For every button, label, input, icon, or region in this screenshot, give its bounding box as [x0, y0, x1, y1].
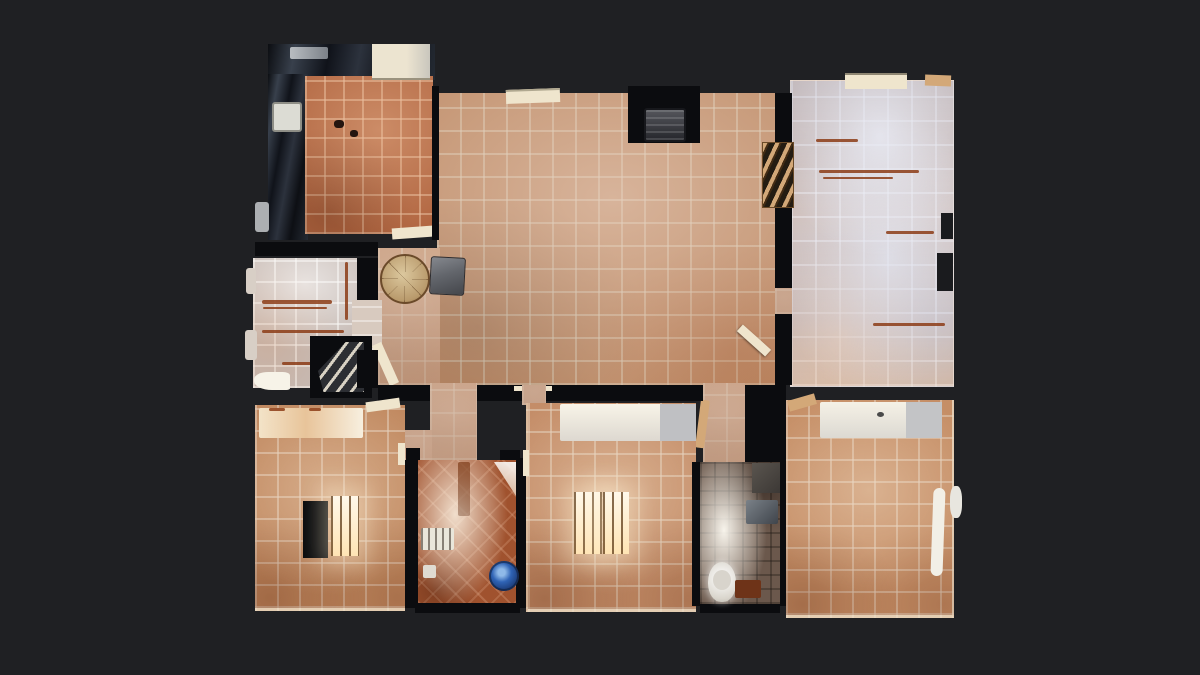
kitchen-counter-left [268, 74, 308, 240]
room-living-hall[interactable] [378, 86, 790, 402]
wall-notch [941, 213, 953, 239]
furniture-streak [816, 139, 858, 142]
scan-hole [303, 501, 328, 558]
toilet-seat [713, 570, 731, 590]
furniture-streak [873, 323, 945, 326]
band-mark [269, 408, 285, 411]
shelf-streak [262, 330, 344, 333]
barred-window-glow-right-pane [603, 492, 629, 554]
furniture-streak [823, 177, 893, 179]
shelf-streak [263, 307, 327, 309]
bath-mat [735, 580, 761, 598]
hall-wall-vent [506, 88, 560, 104]
wall-laundry-left [405, 460, 418, 608]
door-jamb [523, 450, 529, 476]
corridor-left[interactable] [430, 383, 477, 460]
shelf-streak-vertical [345, 262, 348, 320]
bed-bright-band [259, 408, 363, 438]
bathroom-shelf [746, 500, 778, 524]
room-bedroom-bottom-right[interactable] [786, 400, 954, 618]
detergent-box [423, 565, 436, 578]
bed-white-band [820, 402, 942, 438]
wall-dining-hall-upper [357, 258, 378, 300]
wardrobe-gray-section [660, 404, 696, 441]
bed-gray-section [906, 402, 942, 438]
hall-floor [437, 93, 775, 385]
shelf-streak [262, 300, 332, 304]
door-jamb [546, 386, 552, 391]
band-mark [309, 408, 321, 411]
corridor-right[interactable] [703, 383, 745, 465]
corner-door-piece [787, 393, 817, 411]
wall-kitchen-dining [255, 242, 378, 256]
fireplace [644, 108, 686, 142]
wall-laundry-right [516, 458, 526, 608]
furniture-streak [819, 170, 919, 173]
bed-dark-dot [877, 412, 884, 417]
doorway-mid-bedroom [522, 385, 546, 405]
blue-bucket [489, 561, 519, 591]
toilet [708, 562, 736, 602]
wall-kitchen-hall [432, 86, 439, 240]
wall-segment [745, 385, 786, 463]
corner-door-piece [365, 398, 400, 413]
kitchen-sink [272, 102, 302, 132]
dining-left-edge-piece [246, 268, 256, 294]
exterior-door-blob [950, 486, 962, 518]
round-table [380, 254, 430, 304]
drying-rack-shelf [421, 528, 454, 550]
door-jamb [398, 443, 405, 465]
bathroom-counter [752, 463, 780, 493]
kitchen-floor-spot [334, 120, 344, 128]
floorplan-canvas[interactable] [0, 0, 1200, 675]
kitchen-floor-spot [350, 130, 358, 137]
door-jamb [514, 386, 522, 391]
furniture-streak [886, 231, 934, 234]
doorway-topright [775, 288, 792, 314]
room-laundry[interactable] [418, 460, 516, 603]
wall-notch [937, 253, 953, 291]
room-bathroom[interactable] [700, 462, 780, 604]
kitchen-counter-glint [290, 47, 328, 59]
wardrobe-bright-band [560, 404, 696, 441]
wall-segment [546, 385, 703, 401]
room-bedroom-bottom-left[interactable] [255, 405, 405, 611]
barred-window-glow [331, 496, 359, 556]
barred-window-glow-left-pane [574, 492, 602, 554]
wall-bathroom-left [692, 462, 700, 606]
mirror-bright-corner [494, 462, 516, 496]
kitchen-cabinet [372, 44, 430, 80]
wall-hall-topright [775, 93, 792, 385]
room-bedroom-top-right[interactable] [790, 80, 954, 387]
hall-chair [429, 256, 466, 296]
room-bedroom-bottom-middle[interactable] [526, 403, 696, 612]
kitchen-exterior-glint [255, 202, 269, 232]
dining-left-edge-piece [245, 330, 257, 360]
roof-corner-piece [925, 75, 951, 87]
door-leaf-streak [458, 462, 470, 516]
window-ledge [845, 73, 907, 89]
white-door-leaf [930, 488, 945, 576]
wall-dining-hall-lower [357, 350, 378, 388]
louvered-door [762, 142, 794, 208]
dining-white-blob [254, 372, 290, 390]
